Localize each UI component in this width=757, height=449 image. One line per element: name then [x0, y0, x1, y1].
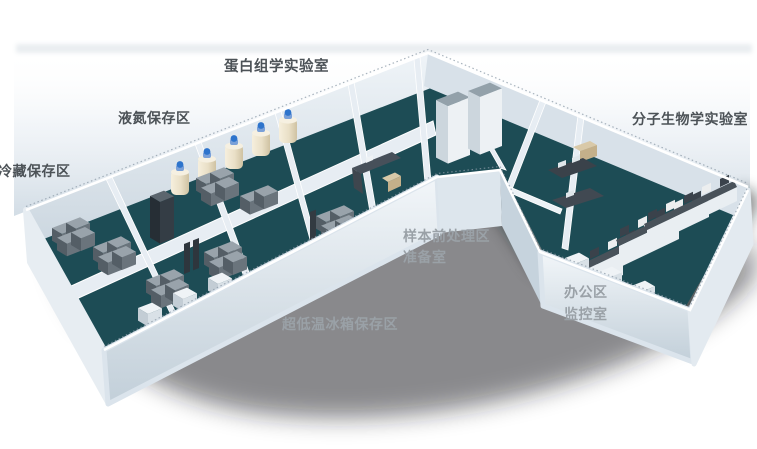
label-molecular-biology-lab: 分子生物学实验室: [632, 113, 748, 127]
label-preparation-room: 准备室: [403, 251, 447, 265]
label-liquid-nitrogen-area: 液氮保存区: [118, 112, 191, 126]
tall-freezer-cabinet: [150, 191, 174, 244]
lab-floorplan-illustration: 蛋白组学实验室 液氮保存区 冷藏保存区 分子生物学实验室 样本前处理区 准备室 …: [0, 0, 757, 449]
label-cold-storage-area: 冷藏保存区: [0, 165, 71, 179]
label-office-area: 办公区: [564, 286, 608, 300]
label-monitoring-room: 监控室: [564, 308, 608, 322]
label-sample-pretreatment-area: 样本前处理区: [403, 230, 490, 244]
label-ult-freezer-area: 超低温冰箱保存区: [282, 318, 398, 332]
building-3d-render: [0, 0, 757, 449]
label-proteomics-lab: 蛋白组学实验室: [224, 60, 329, 75]
